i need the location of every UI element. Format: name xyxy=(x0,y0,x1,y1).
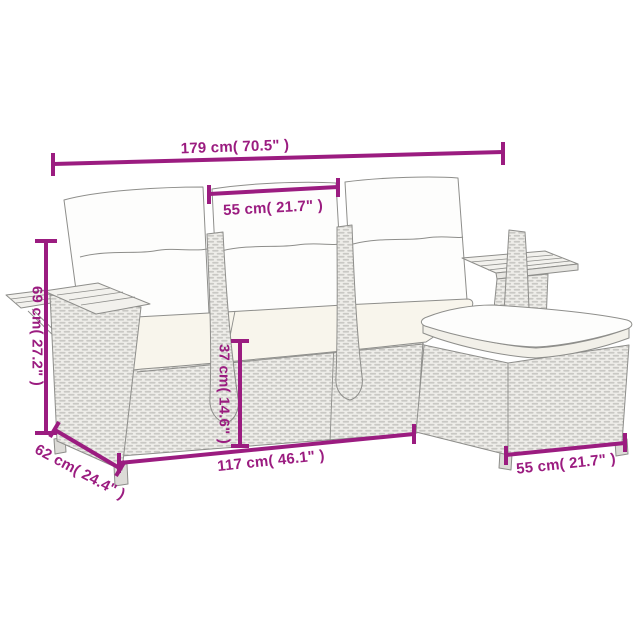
dim-label-overall-height: 69 cm( 27.2" ) xyxy=(30,286,45,386)
dim-label-seat-height: 37 cm( 14.6" ) xyxy=(217,344,232,444)
sofa-illustration xyxy=(6,177,632,486)
dimension-diagram: 179 cm( 70.5" ) 55 cm( 21.7" ) 69 cm( 27… xyxy=(0,0,640,640)
sofa-set-line-drawing xyxy=(0,0,640,640)
dim-label-overall-width: 179 cm( 70.5" ) xyxy=(181,138,290,157)
footstool xyxy=(416,305,632,455)
